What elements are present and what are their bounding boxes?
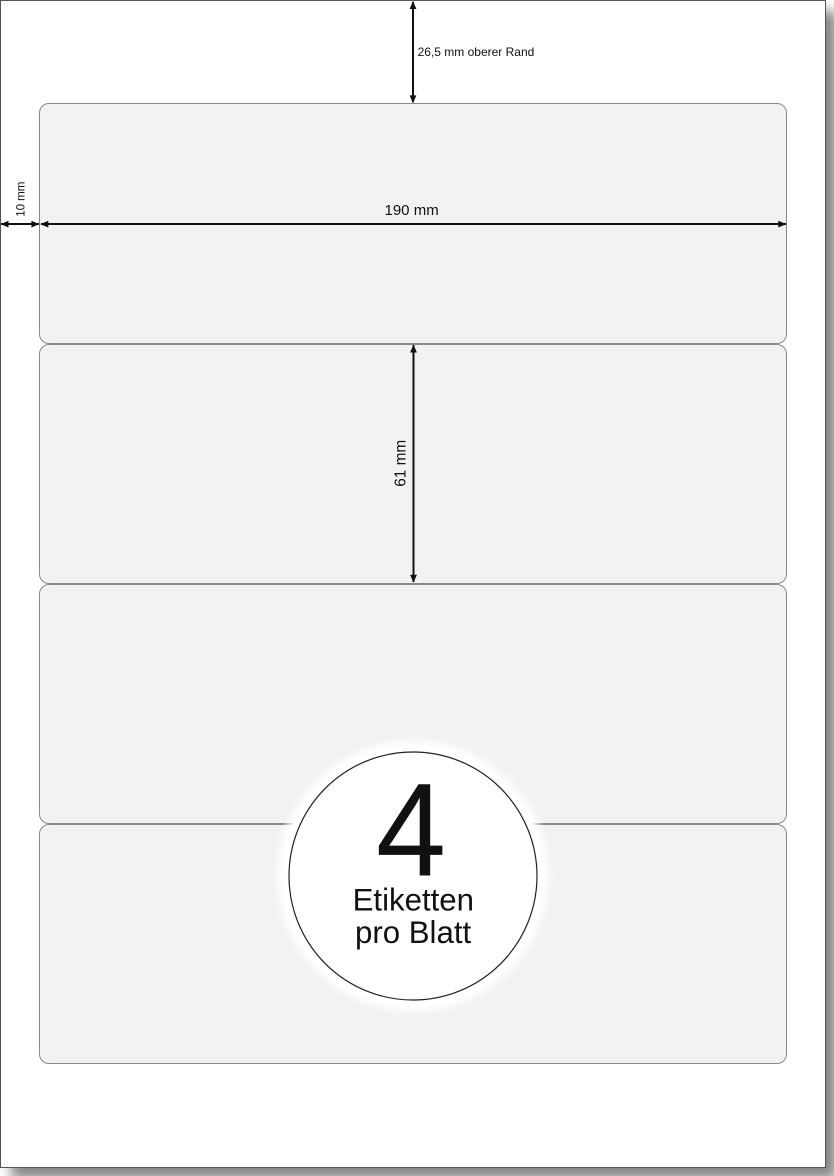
svg-text:pro Blatt: pro Blatt <box>355 915 471 950</box>
svg-text:61 mm: 61 mm <box>392 440 409 487</box>
svg-text:10 mm: 10 mm <box>15 182 27 217</box>
svg-text:190 mm: 190 mm <box>385 202 439 219</box>
svg-text:Etiketten: Etiketten <box>353 882 474 917</box>
svg-text:26,5 mm oberer Rand: 26,5 mm oberer Rand <box>418 45 535 59</box>
